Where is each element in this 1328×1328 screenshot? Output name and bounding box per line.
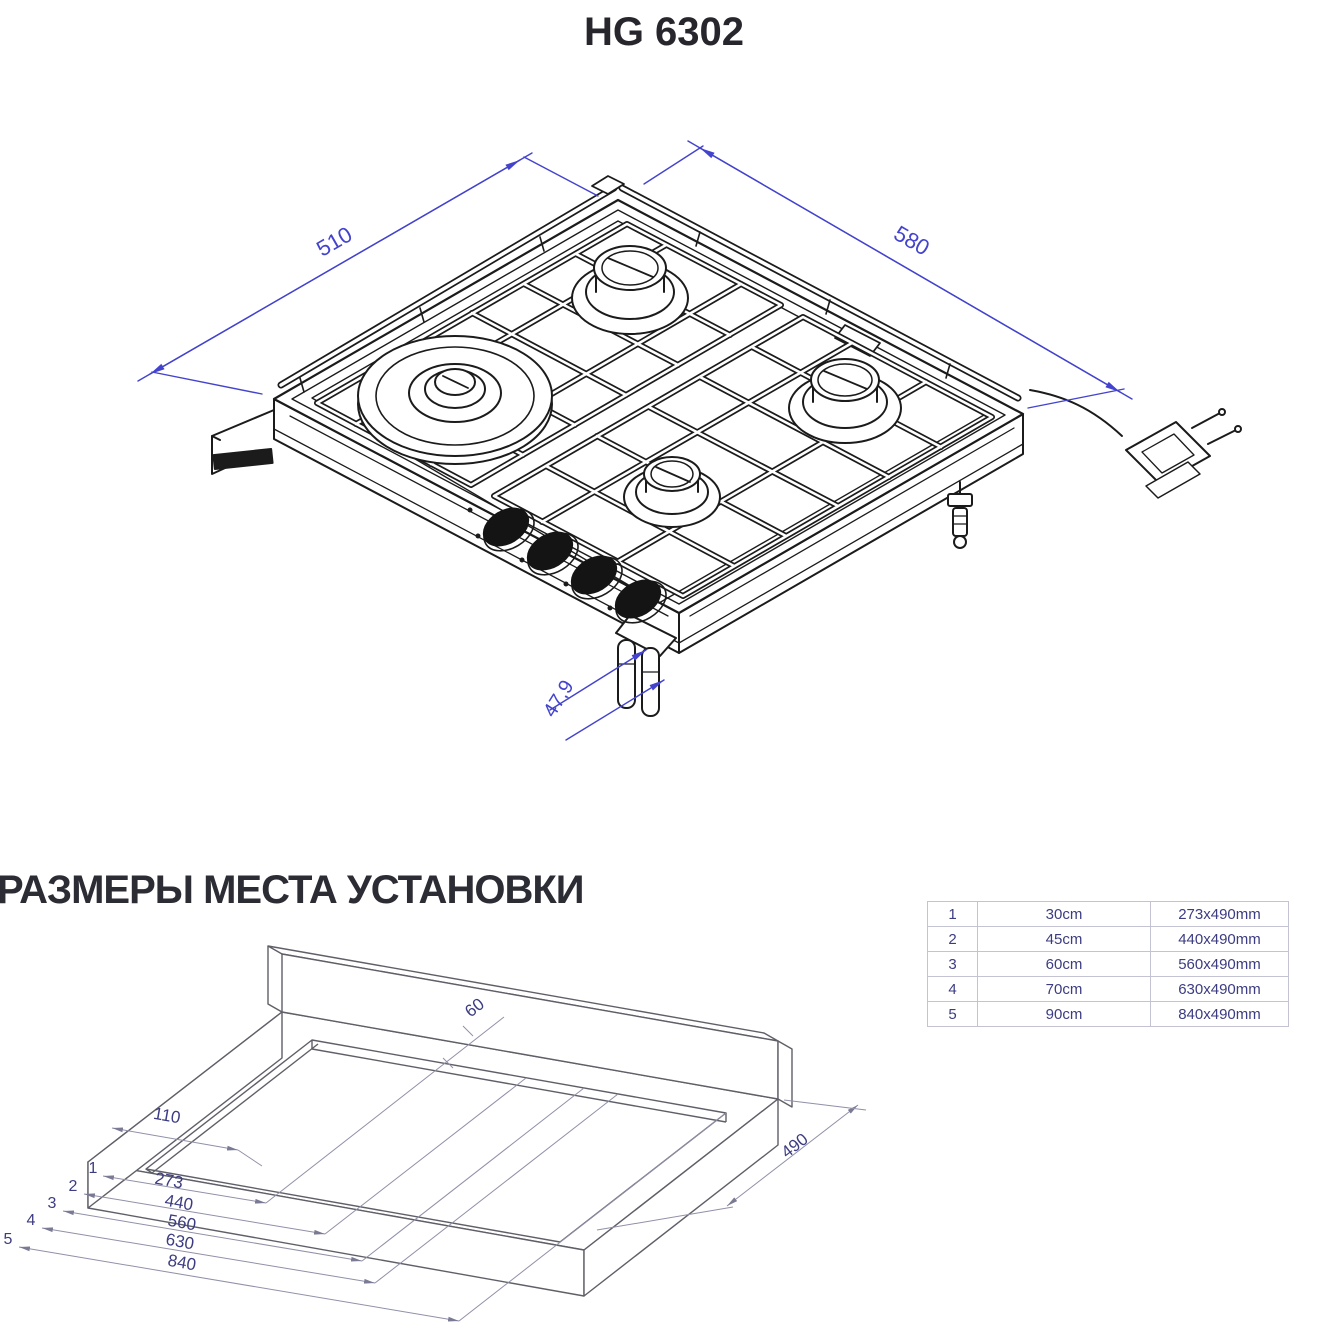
- row-number: 1: [928, 902, 978, 927]
- hob-left-bracket: [212, 410, 274, 474]
- cutout-size: 440x490mm: [1151, 927, 1289, 952]
- row-number: 5: [928, 1002, 978, 1027]
- cutout-size: 273x490mm: [1151, 902, 1289, 927]
- table-row: 1 30cm 273x490mm: [928, 902, 1289, 927]
- table-row: 3 60cm 560x490mm: [928, 952, 1289, 977]
- technical-drawing: 510 580 47,9: [0, 0, 1328, 1328]
- hob-size: 90cm: [978, 1002, 1151, 1027]
- table-row: 5 90cm 840x490mm: [928, 1002, 1289, 1027]
- row-number: 4: [928, 977, 978, 1002]
- page: HG 6302: [0, 0, 1328, 1328]
- marker-4: 4: [27, 1212, 36, 1229]
- label-840: 840: [166, 1251, 197, 1275]
- installation-drawing: 60 110 490 273 440 560 630 840 1 2 3 4 5: [4, 946, 866, 1321]
- table-row: 2 45cm 440x490mm: [928, 927, 1289, 952]
- size-table: 1 30cm 273x490mm 2 45cm 440x490mm 3 60cm…: [927, 901, 1289, 1027]
- hob-isometric-drawing: 510 580 47,9: [138, 141, 1241, 740]
- cutout-size: 840x490mm: [1151, 1002, 1289, 1027]
- marker-1: 1: [89, 1160, 98, 1177]
- marker-3: 3: [48, 1195, 57, 1212]
- cutout-size: 630x490mm: [1151, 977, 1289, 1002]
- dim-label-479: 47,9: [539, 676, 578, 721]
- dim-label-510: 510: [312, 221, 356, 261]
- marker-2: 2: [69, 1178, 78, 1195]
- burner-wok: [358, 336, 552, 464]
- label-490: 490: [778, 1129, 812, 1161]
- hob-size: 70cm: [978, 977, 1151, 1002]
- cutout-size: 560x490mm: [1151, 952, 1289, 977]
- power-plug: [1030, 390, 1241, 498]
- dim-label-580: 580: [890, 220, 934, 260]
- hob-size: 45cm: [978, 927, 1151, 952]
- hob-size: 60cm: [978, 952, 1151, 977]
- hob-size: 30cm: [978, 902, 1151, 927]
- row-number: 2: [928, 927, 978, 952]
- section-title: РАЗМЕРЫ МЕСТА УСТАНОВКИ: [0, 868, 697, 913]
- table-row: 4 70cm 630x490mm: [928, 977, 1289, 1002]
- marker-5: 5: [4, 1231, 13, 1248]
- row-number: 3: [928, 952, 978, 977]
